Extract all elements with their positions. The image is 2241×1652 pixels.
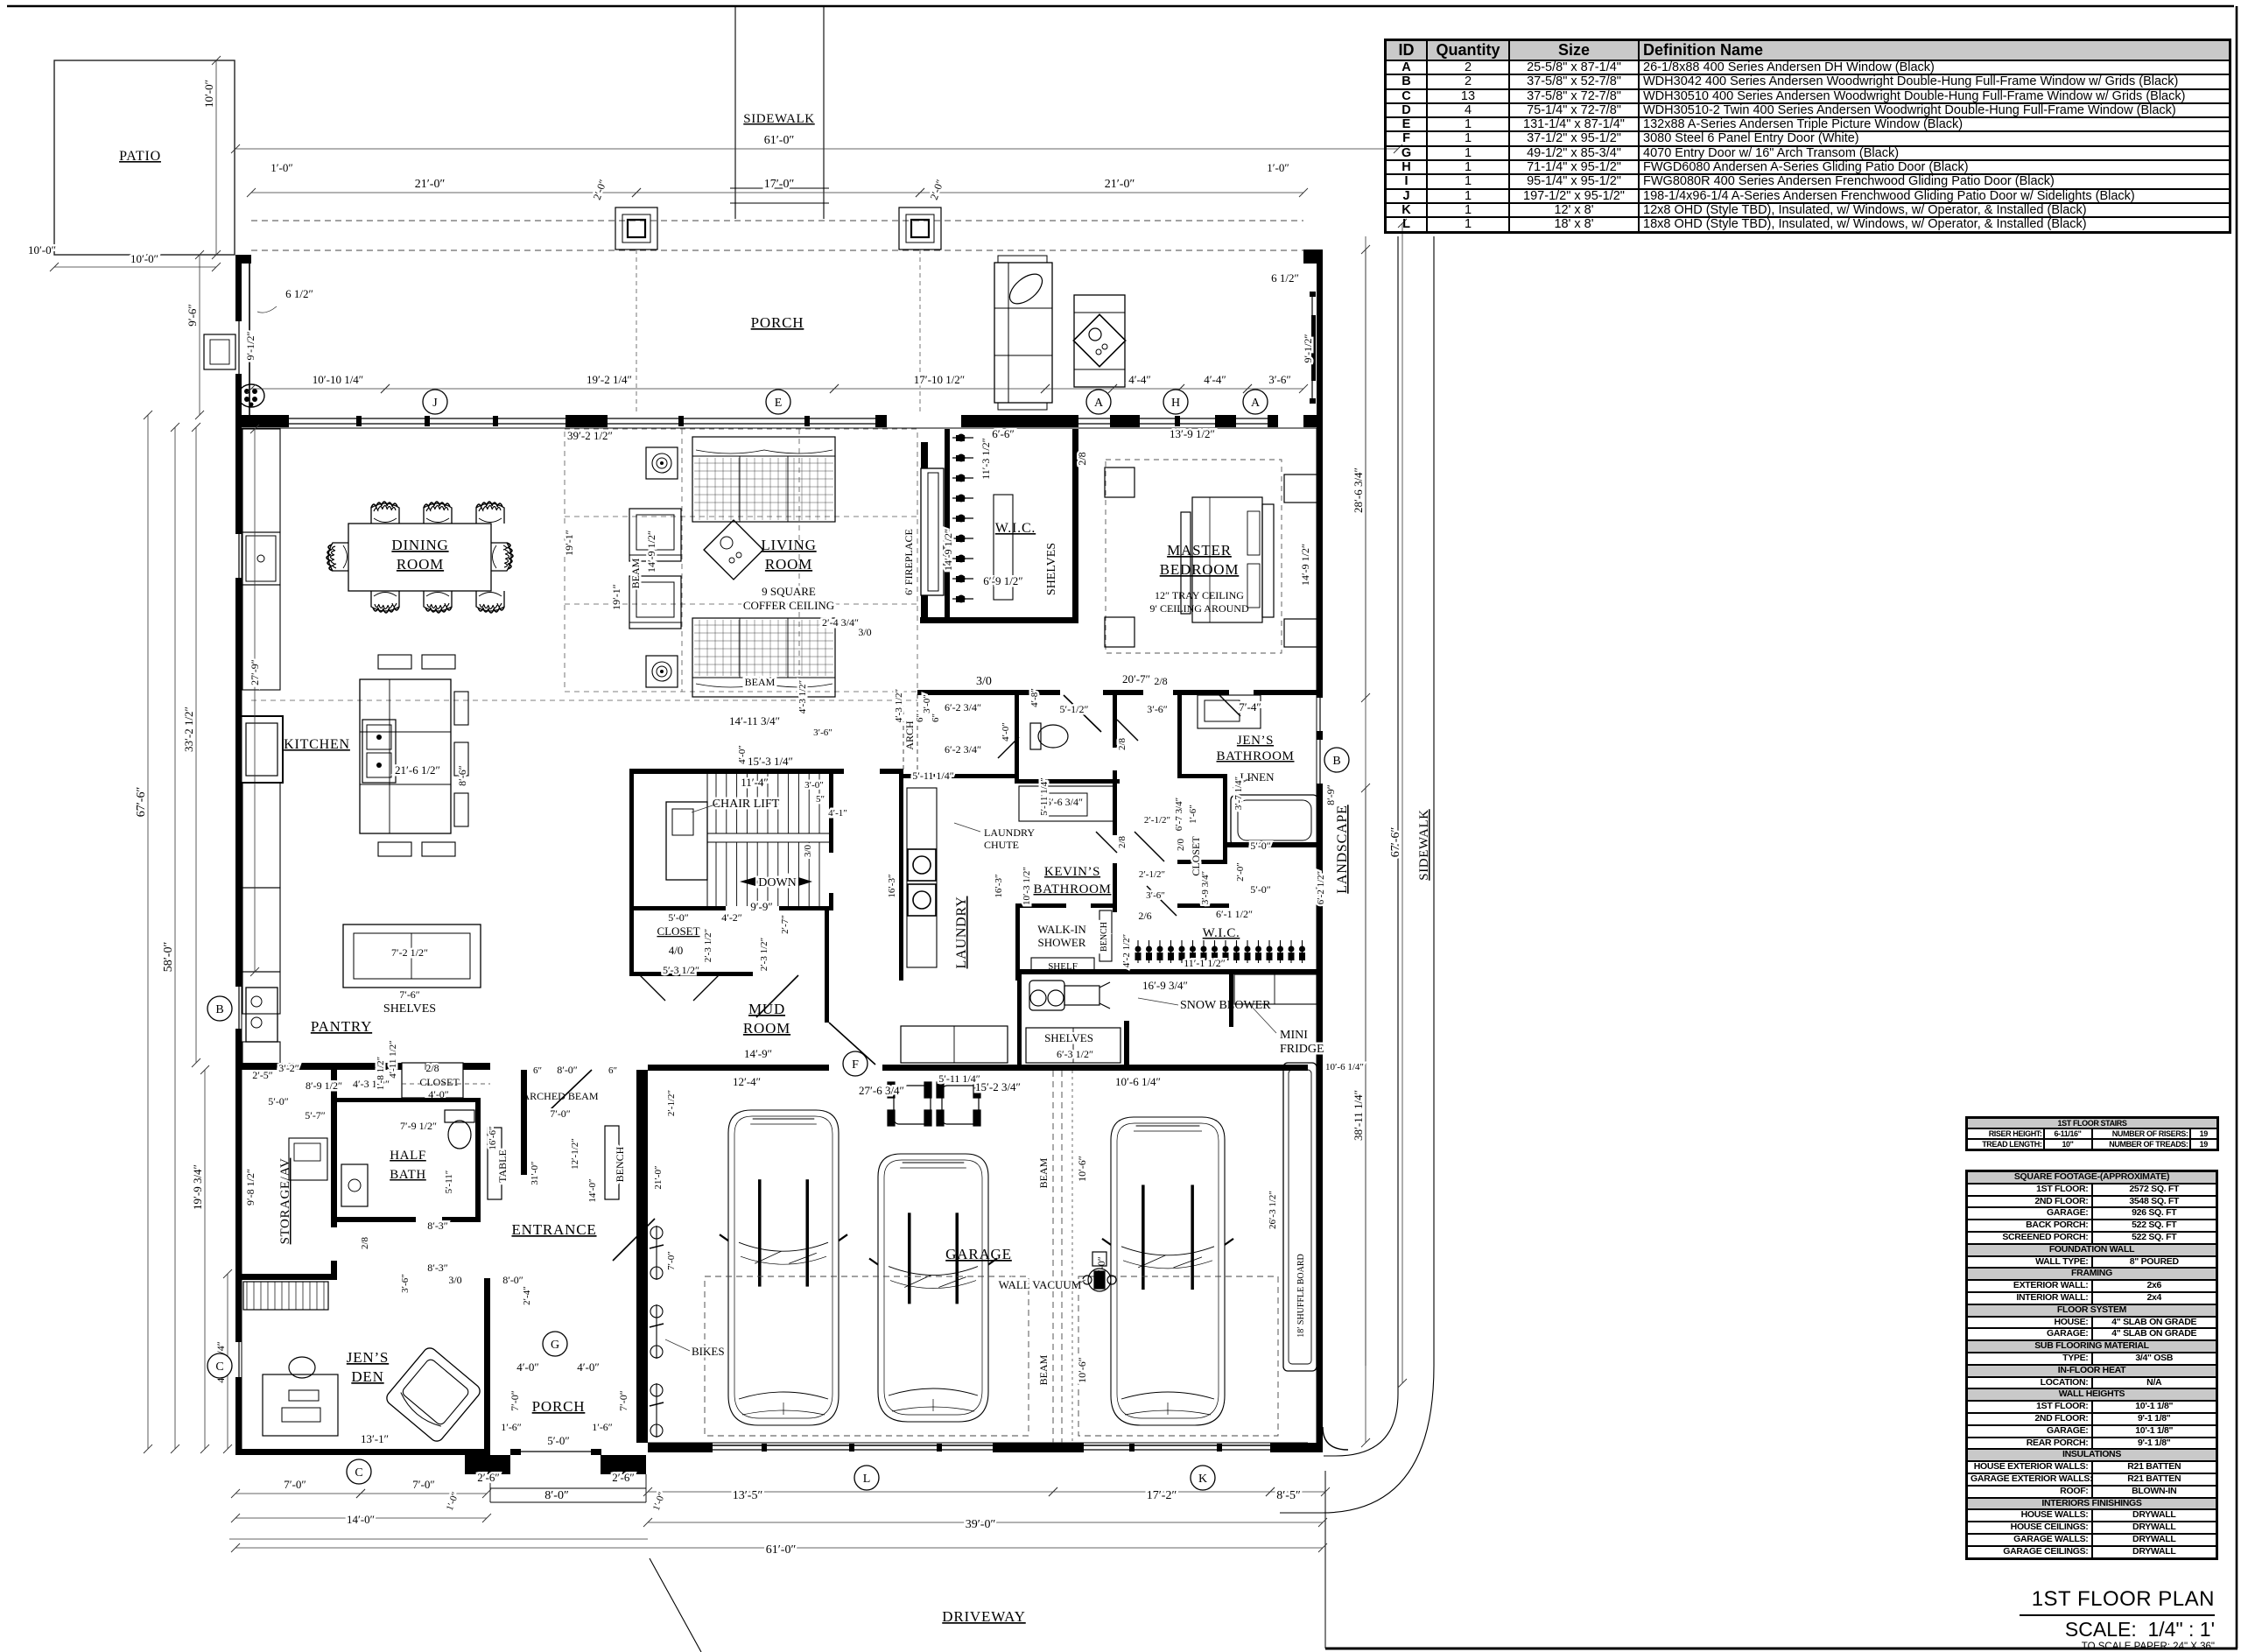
svg-text:8′-6″: 8′-6″: [456, 765, 468, 786]
svg-text:5′-11″: 5′-11″: [444, 1170, 454, 1194]
svg-text:JEN’S: JEN’S: [1237, 734, 1274, 748]
svg-text:15′-2 3/4″: 15′-2 3/4″: [975, 1080, 1021, 1093]
svg-text:13′-1″: 13′-1″: [361, 1432, 389, 1445]
svg-text:9′-8 1/2″: 9′-8 1/2″: [244, 1169, 256, 1206]
svg-text:L: L: [863, 1473, 871, 1486]
svg-text:6′-2 3/4″: 6′-2 3/4″: [945, 743, 981, 756]
svg-text:6 1/2″: 6 1/2″: [1271, 271, 1299, 285]
svg-text:4/0: 4/0: [669, 944, 684, 957]
svg-text:B: B: [215, 1003, 223, 1016]
svg-text:B: B: [1332, 755, 1340, 768]
svg-text:KEVIN’S: KEVIN’S: [1044, 865, 1100, 879]
svg-text:BENCH: BENCH: [614, 1146, 626, 1182]
svg-text:9′-6″: 9′-6″: [186, 304, 199, 327]
svg-text:PATIO: PATIO: [119, 149, 161, 164]
svg-text:4′-2 1/2″: 4′-2 1/2″: [1121, 934, 1132, 967]
svg-text:39′-0″: 39′-0″: [966, 1518, 996, 1531]
svg-text:BATHROOM: BATHROOM: [1217, 749, 1295, 763]
svg-text:1′-6″: 1′-6″: [1188, 805, 1198, 824]
svg-text:2′-1/2″: 2′-1/2″: [1139, 869, 1165, 880]
svg-text:MUD: MUD: [748, 1001, 785, 1017]
svg-text:SHELVES: SHELVES: [1044, 1031, 1093, 1044]
svg-text:3′-0″: 3′-0″: [922, 694, 932, 714]
svg-text:16′-6″: 16′-6″: [488, 1126, 498, 1149]
svg-text:3/0: 3/0: [803, 844, 813, 857]
svg-text:11′-3 1/2″: 11′-3 1/2″: [980, 438, 992, 480]
svg-text:4′-0″: 4′-0″: [1001, 722, 1011, 742]
svg-text:ENTRANCE: ENTRANCE: [511, 1221, 596, 1238]
svg-text:26′-3 1/2″: 26′-3 1/2″: [1268, 1191, 1278, 1229]
svg-text:14′-9 1/2″: 14′-9 1/2″: [942, 529, 954, 571]
svg-text:6″: 6″: [931, 714, 941, 722]
svg-text:CLOSET: CLOSET: [657, 924, 699, 938]
svg-text:12′-4″: 12′-4″: [733, 1075, 761, 1088]
svg-text:LAUNDRY: LAUNDRY: [954, 896, 969, 969]
svg-text:6′ FIREPLACE: 6′ FIREPLACE: [903, 529, 915, 595]
svg-text:17′-10 1/2″: 17′-10 1/2″: [914, 373, 965, 386]
svg-text:4′-4″: 4′-4″: [1128, 373, 1151, 386]
svg-text:39′-2 1/2″: 39′-2 1/2″: [567, 429, 613, 442]
svg-text:2′-6″: 2′-6″: [477, 1471, 500, 1484]
svg-text:21′-0″: 21′-0″: [1105, 178, 1135, 191]
svg-text:C: C: [355, 1466, 362, 1480]
svg-text:LANDSCAPE: LANDSCAPE: [1335, 805, 1350, 893]
svg-text:2′-4″: 2′-4″: [522, 1286, 532, 1305]
svg-text:19′-9 3/4″: 19′-9 3/4″: [191, 1164, 204, 1210]
svg-text:KITCHEN: KITCHEN: [284, 737, 350, 752]
svg-text:DOWN: DOWN: [758, 876, 797, 889]
svg-text:5′-0″: 5′-0″: [1250, 840, 1271, 852]
svg-text:H: H: [1171, 397, 1180, 410]
svg-text:7′-0″: 7′-0″: [550, 1107, 571, 1120]
svg-text:6″: 6″: [915, 714, 925, 722]
svg-text:5′-0″: 5′-0″: [547, 1434, 570, 1447]
svg-text:17′-0″: 17′-0″: [764, 178, 795, 191]
svg-text:2/8: 2/8: [425, 1062, 439, 1074]
svg-text:9′-1/2″: 9′-1/2″: [1302, 334, 1314, 363]
svg-text:8′-5″: 8′-5″: [1276, 1489, 1301, 1502]
svg-text:19′-2 1/4″: 19′-2 1/4″: [587, 373, 632, 386]
svg-text:BIKES: BIKES: [692, 1345, 725, 1358]
svg-text:F: F: [852, 1058, 859, 1072]
svg-text:5″: 5″: [816, 794, 825, 805]
svg-text:8′-9″: 8′-9″: [1324, 784, 1337, 805]
svg-text:WALK-IN: WALK-IN: [1037, 923, 1086, 936]
svg-text:2′-5″: 2′-5″: [252, 1069, 273, 1081]
svg-text:JEN’S: JEN’S: [347, 1349, 389, 1366]
svg-text:10′-10 1/4″: 10′-10 1/4″: [313, 373, 363, 386]
svg-text:5′-11 1/4″: 5′-11 1/4″: [912, 770, 954, 782]
svg-text:BATHROOM: BATHROOM: [1034, 882, 1112, 896]
svg-text:A: A: [1251, 397, 1261, 410]
svg-text:2/8: 2/8: [1117, 737, 1128, 750]
svg-text:CHAIR LIFT: CHAIR LIFT: [713, 798, 780, 811]
svg-text:TABLE: TABLE: [496, 1149, 509, 1183]
svg-text:7′-0″: 7′-0″: [284, 1478, 306, 1491]
svg-text:14′-9 1/2″: 14′-9 1/2″: [1299, 544, 1311, 586]
svg-text:2′-1/2″: 2′-1/2″: [666, 1090, 677, 1116]
svg-text:14′-11 3/4″: 14′-11 3/4″: [729, 714, 780, 728]
svg-text:9 SQUARE: 9 SQUARE: [762, 585, 816, 598]
svg-text:10′-6″: 10′-6″: [1076, 1156, 1088, 1182]
svg-text:8′-9 1/2″: 8′-9 1/2″: [306, 1079, 342, 1092]
svg-text:19′-1″: 19′-1″: [610, 584, 622, 610]
svg-text:E: E: [775, 397, 783, 410]
svg-text:DEN: DEN: [351, 1368, 383, 1385]
svg-text:LAUNDRY: LAUNDRY: [984, 826, 1035, 839]
svg-text:3′-0″: 3′-0″: [804, 780, 824, 791]
svg-text:BEAM: BEAM: [1037, 1157, 1050, 1188]
svg-text:10′-0″: 10′-0″: [130, 252, 158, 265]
svg-text:J: J: [432, 397, 438, 410]
svg-text:SHOWER: SHOWER: [1038, 936, 1086, 949]
svg-text:16′-3″: 16′-3″: [994, 874, 1004, 897]
svg-text:13′-5″: 13′-5″: [733, 1489, 763, 1502]
svg-text:4′-2″: 4′-2″: [721, 911, 742, 924]
svg-text:1′-0″: 1′-0″: [1267, 161, 1289, 174]
svg-text:21′-6 1/2″: 21′-6 1/2″: [395, 763, 440, 777]
svg-text:9′-1/2″: 9′-1/2″: [244, 332, 256, 361]
svg-text:7′-9 1/2″: 7′-9 1/2″: [400, 1120, 437, 1132]
svg-text:13′-9 1/2″: 13′-9 1/2″: [1170, 427, 1215, 440]
svg-text:2′-4 3/4″: 2′-4 3/4″: [822, 616, 859, 629]
svg-text:10′-6 1/4″: 10′-6 1/4″: [1115, 1075, 1161, 1088]
svg-text:LINEN: LINEN: [1240, 770, 1275, 784]
svg-text:SHELVES: SHELVES: [383, 1002, 436, 1016]
svg-text:ROOM: ROOM: [743, 1020, 790, 1037]
svg-text:6 1/2″: 6 1/2″: [285, 287, 313, 300]
svg-text:CHUTE: CHUTE: [984, 839, 1019, 851]
svg-text:GARAGE: GARAGE: [945, 1246, 1012, 1262]
svg-text:2′-0″: 2′-0″: [1235, 862, 1246, 882]
svg-text:2/6: 2/6: [1138, 910, 1151, 922]
svg-text:1′-6″: 1′-6″: [592, 1421, 613, 1433]
svg-text:14′-0″: 14′-0″: [587, 1178, 598, 1202]
svg-text:LIVING: LIVING: [761, 537, 816, 553]
svg-text:1′-6″: 1′-6″: [501, 1421, 522, 1433]
svg-text:BATH: BATH: [390, 1168, 426, 1182]
svg-text:31′-0″: 31′-0″: [530, 1161, 540, 1185]
svg-text:4′-0″: 4′-0″: [577, 1360, 600, 1374]
svg-text:58′-0″: 58′-0″: [162, 942, 175, 973]
svg-text:W.I.C.: W.I.C.: [995, 521, 1036, 536]
svg-text:21′-0″: 21′-0″: [653, 1165, 664, 1189]
svg-text:12″ TRAY CEILING: 12″ TRAY CEILING: [1155, 589, 1244, 601]
svg-text:10′-6 1/4″: 10′-6 1/4″: [1325, 1062, 1364, 1072]
svg-text:67′-6″: 67′-6″: [135, 787, 148, 818]
svg-text:4′-4″: 4′-4″: [1204, 373, 1226, 386]
svg-text:21′-0″: 21′-0″: [415, 178, 446, 191]
svg-text:5′-0″: 5′-0″: [1250, 883, 1271, 896]
svg-text:28′-6 3/4″: 28′-6 3/4″: [1352, 467, 1365, 513]
svg-text:9′ CEILING AROUND: 9′ CEILING AROUND: [1149, 602, 1249, 615]
svg-text:5′-0″: 5′-0″: [268, 1095, 289, 1107]
svg-text:4′-0″: 4′-0″: [737, 745, 748, 764]
svg-text:BEDROOM: BEDROOM: [1160, 561, 1240, 578]
svg-text:3′-6″: 3′-6″: [813, 728, 832, 738]
svg-text:3/0: 3/0: [858, 626, 871, 638]
svg-text:2′-7″: 2′-7″: [780, 915, 790, 934]
svg-text:8′-0″: 8′-0″: [502, 1274, 523, 1286]
svg-text:11′-1 1/2″: 11′-1 1/2″: [1184, 957, 1226, 969]
svg-text:6″: 6″: [608, 1065, 617, 1076]
svg-text:9′-9″: 9′-9″: [750, 900, 773, 913]
svg-text:BENCH: BENCH: [1099, 922, 1109, 952]
svg-text:2′-6″: 2′-6″: [612, 1471, 635, 1484]
svg-text:7′-0″: 7′-0″: [412, 1478, 435, 1491]
svg-text:6′-9 1/2″: 6′-9 1/2″: [983, 574, 1022, 587]
svg-text:7′-0″: 7′-0″: [666, 1251, 677, 1270]
svg-text:ARCH: ARCH: [903, 721, 916, 750]
svg-text:16′-9 3/4″: 16′-9 3/4″: [1142, 979, 1188, 992]
svg-text:DRIVEWAY: DRIVEWAY: [942, 1608, 1026, 1625]
svg-text:18′ SHUFFLE BOARD: 18′ SHUFFLE BOARD: [1296, 1254, 1306, 1338]
svg-text:2/8: 2/8: [1154, 675, 1167, 687]
svg-text:3/0: 3/0: [976, 675, 992, 688]
svg-text:16′-3″: 16′-3″: [887, 874, 897, 897]
svg-text:4′-1″: 4′-1″: [828, 808, 847, 819]
svg-text:61′-0″: 61′-0″: [766, 1543, 797, 1557]
svg-text:2/8: 2/8: [360, 1236, 370, 1249]
svg-text:5′-0″: 5′-0″: [668, 911, 689, 924]
svg-text:3′-7 1/4″: 3′-7 1/4″: [1233, 777, 1244, 810]
svg-text:6′-2 3/4″: 6′-2 3/4″: [945, 701, 981, 714]
svg-text:2/0: 2/0: [1176, 838, 1186, 851]
svg-text:BEAM: BEAM: [745, 676, 776, 688]
svg-text:BEAM: BEAM: [629, 558, 642, 588]
svg-text:27′-9″: 27′-9″: [249, 659, 261, 685]
svg-text:3/0: 3/0: [448, 1274, 461, 1286]
svg-text:8′-0″: 8′-0″: [557, 1064, 578, 1076]
svg-text:3′-6″: 3′-6″: [1147, 703, 1168, 715]
svg-text:5′-11 1/4″: 5′-11 1/4″: [1039, 777, 1050, 816]
svg-text:4′-8″: 4′-8″: [1029, 688, 1040, 707]
svg-text:5′-6 3/4″: 5′-6 3/4″: [1046, 796, 1083, 808]
svg-text:SIDEWALK: SIDEWALK: [743, 112, 814, 126]
svg-text:4′-0″: 4′-0″: [516, 1360, 539, 1374]
svg-text:1′-8 1/2″: 1′-8 1/2″: [376, 1057, 386, 1090]
svg-text:10′-3 1/2″: 10′-3 1/2″: [1022, 867, 1032, 905]
svg-text:4′-11 1/2″: 4′-11 1/2″: [388, 1040, 398, 1079]
svg-text:6′-6″: 6′-6″: [992, 427, 1015, 440]
svg-text:6′-7 3/4″: 6′-7 3/4″: [1174, 798, 1184, 831]
svg-text:11′-4″: 11′-4″: [741, 776, 769, 789]
svg-text:14′-0″: 14′-0″: [347, 1513, 375, 1526]
svg-text:33′-2 1/2″: 33′-2 1/2″: [182, 706, 195, 752]
svg-text:2′-3 1/2″: 2′-3 1/2″: [703, 929, 713, 962]
svg-text:67′-6″: 67′-6″: [1389, 827, 1402, 858]
svg-text:FRIDGE: FRIDGE: [1280, 1043, 1324, 1056]
svg-text:ROOM: ROOM: [765, 556, 812, 573]
svg-text:5′-11 1/4″: 5′-11 1/4″: [938, 1072, 980, 1085]
svg-text:PANTRY: PANTRY: [311, 1018, 372, 1035]
svg-text:1′-0″: 1′-0″: [270, 161, 293, 174]
svg-text:7′-6″: 7′-6″: [399, 988, 420, 1001]
svg-text:7′-4″: 7′-4″: [1239, 700, 1261, 714]
svg-text:2′-1/2″: 2′-1/2″: [1144, 815, 1170, 826]
svg-text:W.I.C.: W.I.C.: [1203, 926, 1240, 940]
svg-text:3′-2″: 3′-2″: [278, 1062, 299, 1074]
svg-text:6″: 6″: [533, 1065, 542, 1076]
svg-text:10′-0″: 10′-0″: [202, 80, 215, 108]
svg-text:61′-0″: 61′-0″: [764, 134, 795, 147]
svg-text:14′-9 1/2″: 14′-9 1/2″: [645, 531, 657, 573]
svg-text:10′-0″: 10′-0″: [28, 243, 56, 257]
svg-text:8′-0″: 8′-0″: [544, 1489, 569, 1502]
svg-text:3′-6″: 3′-6″: [1146, 890, 1165, 901]
svg-text:5′-1/2″: 5′-1/2″: [1060, 703, 1089, 715]
svg-text:BEAM: BEAM: [1037, 1354, 1050, 1385]
svg-text:DINING: DINING: [391, 537, 448, 553]
svg-text:7′-0″: 7′-0″: [509, 1390, 521, 1411]
svg-text:3′-6″: 3′-6″: [1268, 373, 1291, 386]
svg-text:A: A: [1094, 397, 1104, 410]
svg-text:15′-3 1/4″: 15′-3 1/4″: [748, 755, 793, 768]
svg-text:17′-2″: 17′-2″: [1147, 1489, 1177, 1502]
svg-text:5′-7″: 5′-7″: [305, 1109, 326, 1121]
svg-text:7′-0″: 7′-0″: [617, 1390, 629, 1411]
svg-text:C: C: [215, 1360, 223, 1374]
svg-text:4′-3 1/2″: 4′-3 1/2″: [797, 680, 808, 714]
svg-text:SIDEWALK: SIDEWALK: [1417, 809, 1431, 880]
svg-text:MINI: MINI: [1280, 1029, 1308, 1042]
svg-text:MASTER: MASTER: [1167, 542, 1232, 559]
svg-text:20′-7″: 20′-7″: [1122, 672, 1150, 685]
svg-text:2/8: 2/8: [1117, 835, 1128, 848]
svg-text:6′-2 1/2″: 6′-2 1/2″: [1316, 871, 1326, 904]
svg-text:6′-1 1/2″: 6′-1 1/2″: [1216, 908, 1253, 920]
svg-text:10′-6″: 10′-6″: [1076, 1357, 1088, 1383]
svg-text:8′-3″: 8′-3″: [427, 1262, 448, 1274]
svg-text:G: G: [551, 1339, 559, 1352]
svg-text:ROOM: ROOM: [397, 556, 444, 573]
svg-text:38′-11 1/4″: 38′-11 1/4″: [1352, 1090, 1365, 1141]
svg-text:4′-3 1/2″: 4′-3 1/2″: [894, 689, 904, 722]
svg-text:CLOSET: CLOSET: [419, 1076, 460, 1088]
svg-text:PORCH: PORCH: [751, 314, 804, 331]
svg-text:K: K: [1198, 1473, 1207, 1486]
svg-text:WALL VACUUM: WALL VACUUM: [999, 1278, 1082, 1291]
svg-text:CLOSET: CLOSET: [1190, 836, 1202, 876]
svg-text:6′-3 1/2″: 6′-3 1/2″: [1057, 1048, 1093, 1060]
svg-text:14′-9″: 14′-9″: [744, 1047, 772, 1060]
svg-text:PORCH: PORCH: [532, 1398, 586, 1415]
svg-text:5′-3 1/2″: 5′-3 1/2″: [663, 964, 699, 976]
svg-text:8′-3″: 8′-3″: [427, 1220, 448, 1232]
svg-text:SNOW BLOWER: SNOW BLOWER: [1180, 999, 1271, 1012]
svg-text:HALF: HALF: [390, 1149, 426, 1163]
svg-text:STORAGE/AV: STORAGE/AV: [278, 1158, 292, 1245]
svg-text:12′-1/2″: 12′-1/2″: [570, 1138, 580, 1170]
svg-text:3′-9 3/4″: 3′-9 3/4″: [1200, 871, 1211, 904]
svg-text:SHELVES: SHELVES: [1045, 543, 1058, 595]
svg-text:2/8: 2/8: [1076, 452, 1088, 465]
svg-text:2′-3 1/2″: 2′-3 1/2″: [759, 938, 769, 971]
svg-text:COFFER CEILING: COFFER CEILING: [743, 599, 834, 612]
svg-text:7′-2 1/2″: 7′-2 1/2″: [391, 946, 428, 959]
svg-text:27′-6 3/4″: 27′-6 3/4″: [859, 1084, 904, 1097]
svg-text:3′-6″: 3′-6″: [400, 1274, 411, 1293]
svg-text:19′-1″: 19′-1″: [563, 530, 575, 556]
